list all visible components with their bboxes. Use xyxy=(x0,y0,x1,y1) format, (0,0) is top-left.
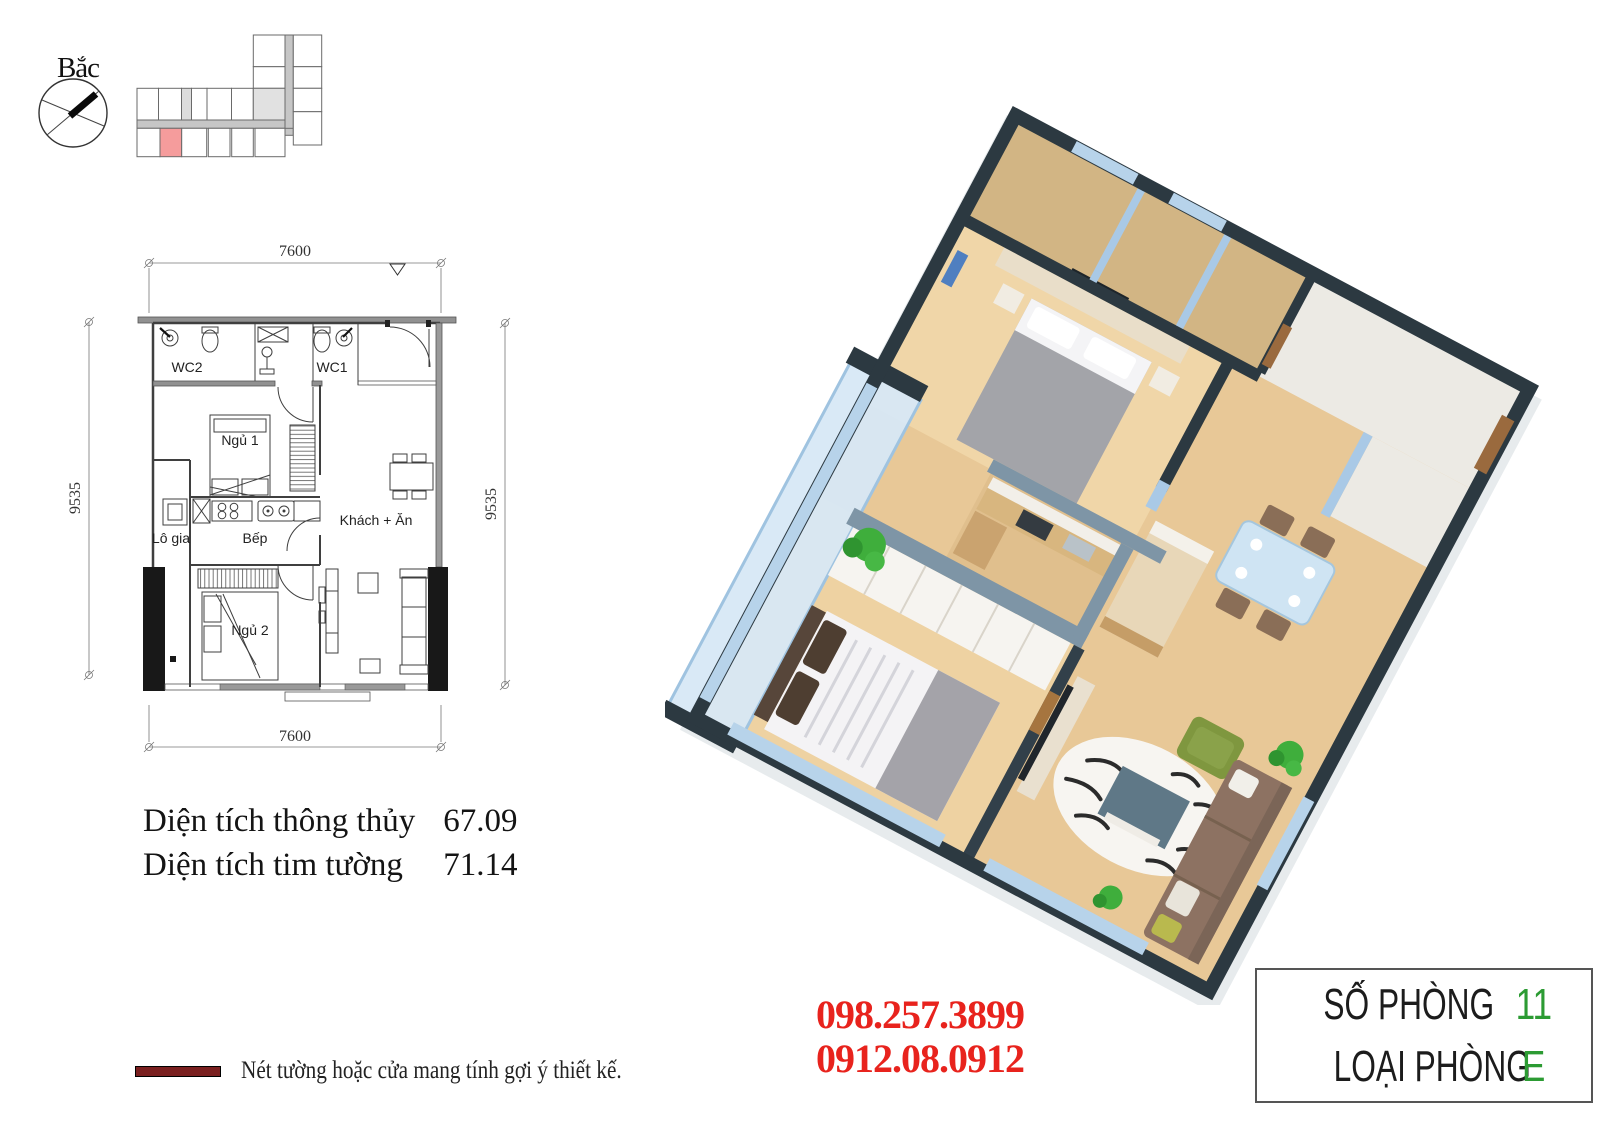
room-type-row: LOẠI PHÒNG E xyxy=(1257,1036,1591,1098)
keyplan xyxy=(125,20,340,165)
room-label-living: Khách + Ăn xyxy=(340,512,413,528)
room-number-row: SỐ PHÒNG 11 xyxy=(1257,974,1591,1036)
legend-note: Nét tường hoặc cửa mang tính gợi ý thiết… xyxy=(241,1057,622,1085)
bedroom1-3d xyxy=(879,216,1202,518)
loggia-glass xyxy=(668,363,921,743)
room-label-wc2: WC2 xyxy=(171,359,202,375)
floorplan-2d: 7600 7600 9535 9535 xyxy=(60,235,520,765)
bedroom2-3d xyxy=(743,508,1090,843)
area-wall-row: Diện tích tim tường 71.14 xyxy=(143,843,518,887)
dim-left: 9535 xyxy=(67,482,84,514)
entry-marker-icon xyxy=(390,264,405,275)
legend-line-swatch xyxy=(135,1066,221,1077)
area-wall-value: 71.14 xyxy=(443,843,517,887)
plant-icon xyxy=(749,511,1312,962)
room-label-bedroom2: Ngủ 2 xyxy=(231,622,269,638)
dim-right: 9535 xyxy=(483,488,500,520)
area-clear-row: Diện tích thông thủy 67.09 xyxy=(143,799,518,843)
tv-icon xyxy=(1067,268,1129,309)
wc-band xyxy=(153,323,436,386)
keyplan-neighbor-cell xyxy=(253,88,285,120)
coffee-table xyxy=(1097,766,1189,849)
phone-number-1: 098.257.3899 xyxy=(795,993,1045,1037)
contact-phones: 098.257.3899 0912.08.0912 xyxy=(795,993,1045,1081)
sofa xyxy=(1142,758,1292,965)
compass: Bắc xyxy=(20,25,135,155)
room-label-kitchen: Bếp xyxy=(243,530,268,546)
dim-bottom: 7600 xyxy=(279,728,311,745)
room-type-value: E xyxy=(1522,1042,1545,1092)
dining-table xyxy=(1213,518,1337,627)
walls-3d xyxy=(690,107,1536,992)
keyplan-corridor-wing xyxy=(285,35,293,130)
room-label-wc1: WC1 xyxy=(316,359,347,375)
render-3d xyxy=(665,95,1545,1005)
kitchen-3d xyxy=(953,444,1214,661)
dim-top: 7600 xyxy=(279,243,311,260)
entry-door xyxy=(1474,415,1515,475)
room-type-label: LOẠI PHÒNG xyxy=(1334,1042,1531,1092)
area-clear-value: 67.09 xyxy=(443,799,517,843)
area-wall-label: Diện tích tim tường xyxy=(143,843,435,887)
area-clear-label: Diện tích thông thủy xyxy=(143,799,435,843)
zebra-rug xyxy=(1029,709,1250,905)
room-info-box: SỐ PHÒNG 11 LOẠI PHÒNG E xyxy=(1255,968,1593,1103)
keyplan-corridor xyxy=(137,120,293,128)
room-number-label: SỐ PHÒNG xyxy=(1323,980,1494,1030)
wall-art xyxy=(941,250,968,287)
floorplan-sheet: Bắc xyxy=(0,0,1600,1131)
room-label-loggia: Lô gia xyxy=(152,530,190,546)
area-summary: Diện tích thông thủy 67.09 Diện tích tim… xyxy=(143,799,518,887)
room-number-value: 11 xyxy=(1516,980,1553,1030)
keyplan-highlight-cell xyxy=(160,128,182,156)
living-3d xyxy=(962,454,1405,977)
armchair xyxy=(1174,714,1247,782)
phone-number-2: 0912.08.0912 xyxy=(795,1037,1045,1081)
legend: Nét tường hoặc cửa mang tính gợi ý thiết… xyxy=(135,1057,689,1085)
room-label-bedroom1: Ngủ 1 xyxy=(221,432,259,448)
